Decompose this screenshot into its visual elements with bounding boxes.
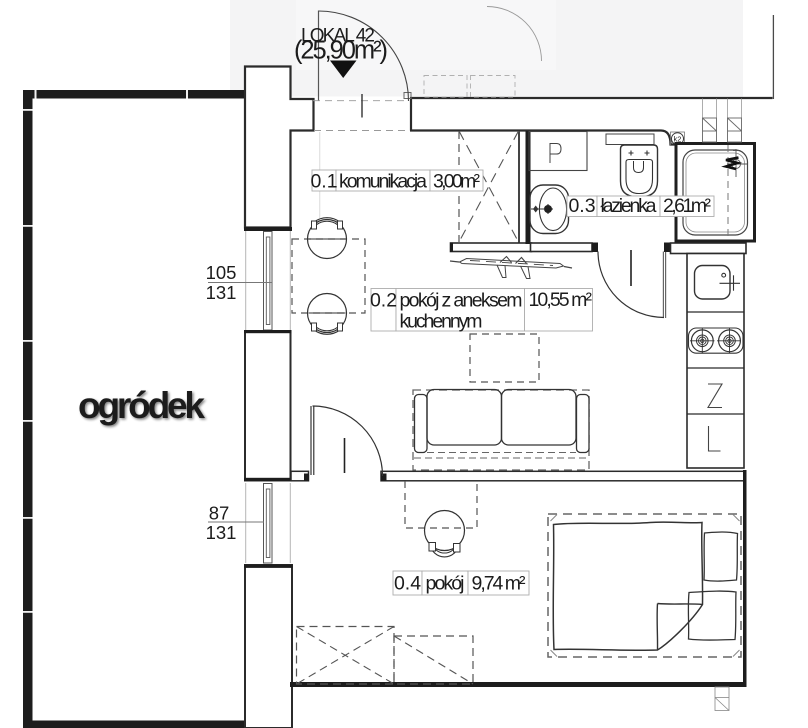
- svg-text:131: 131: [206, 282, 237, 303]
- svg-text:87: 87: [209, 503, 230, 524]
- svg-text:0.2: 0.2: [370, 290, 397, 312]
- svg-text:3,00m²: 3,00m²: [433, 171, 481, 193]
- svg-text:kuchennym: kuchennym: [400, 311, 483, 333]
- svg-text:131: 131: [206, 522, 237, 543]
- svg-text:komunikacja: komunikacja: [339, 171, 427, 193]
- svg-text:9,74 m²: 9,74 m²: [472, 573, 527, 595]
- svg-text:pokój z aneksem: pokój z aneksem: [400, 290, 523, 312]
- svg-text:0.3: 0.3: [568, 195, 595, 217]
- svg-text:0.4: 0.4: [394, 573, 421, 595]
- svg-text:2,61m²: 2,61m²: [663, 195, 712, 217]
- svg-text:ogródek: ogródek: [78, 385, 205, 426]
- svg-text:pokój: pokój: [426, 573, 465, 595]
- svg-text:105: 105: [206, 262, 237, 283]
- svg-text:(25,90m²): (25,90m²): [294, 37, 388, 65]
- svg-text:0.1: 0.1: [310, 171, 337, 193]
- svg-text:łazienka: łazienka: [601, 195, 657, 217]
- svg-text:10,55 m²: 10,55 m²: [529, 289, 593, 311]
